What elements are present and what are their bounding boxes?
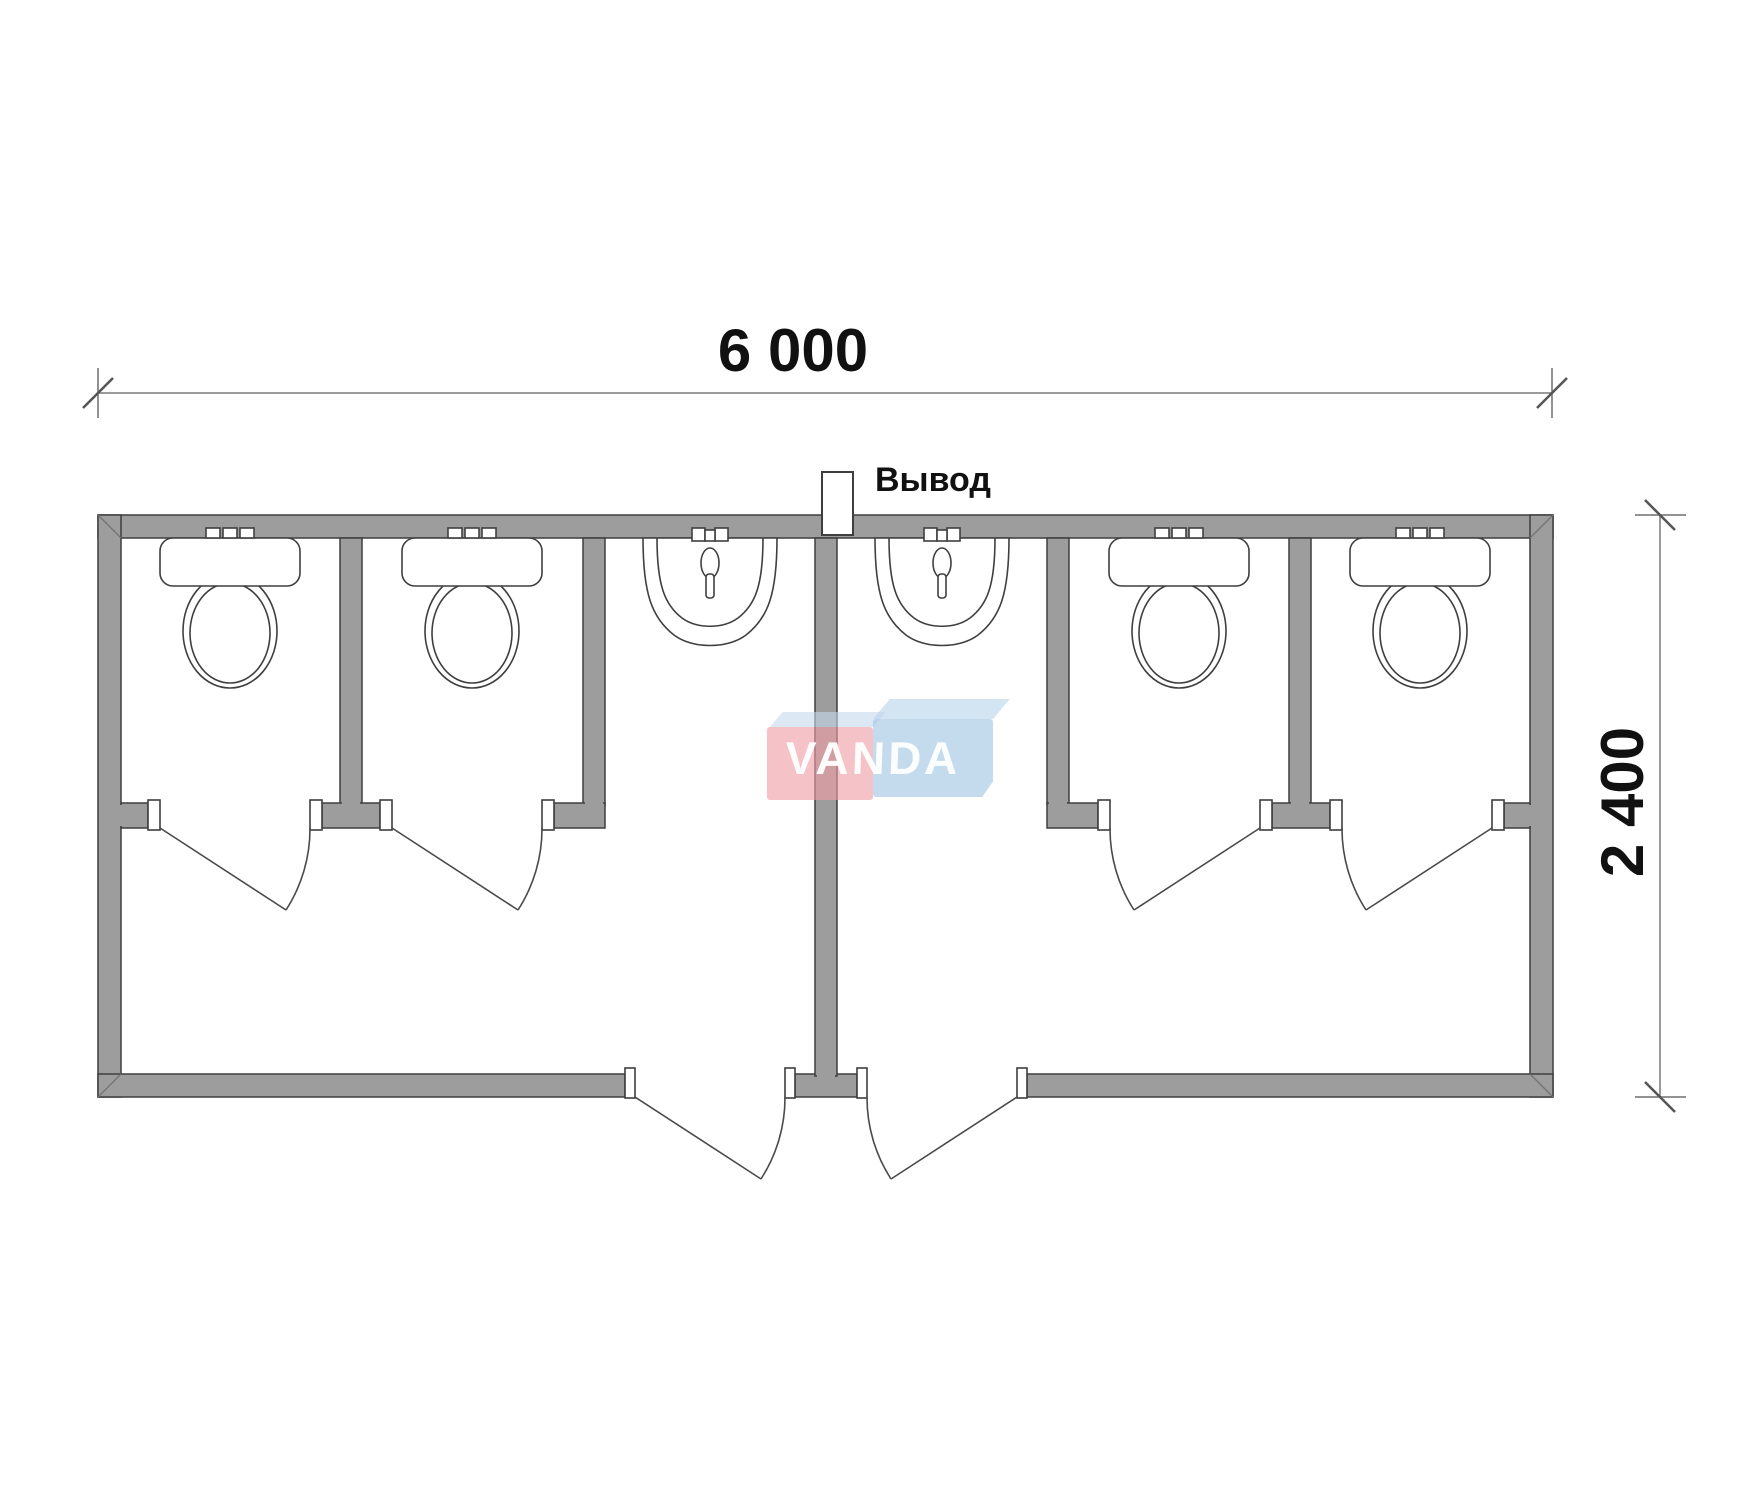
stall2-door-jamb-right [542, 800, 554, 830]
floor-plan-canvas: VANDA 6 000 2 400 Вывод [0, 0, 1763, 1503]
toilet-icon [1350, 528, 1490, 688]
stall1-door-jamb-left [148, 800, 160, 830]
watermark-text: VANDA [778, 731, 968, 785]
stall4-door-jamb-left [1330, 800, 1342, 830]
partition-lobby-stall3 [1047, 538, 1069, 805]
toilet-icon [402, 528, 542, 688]
dimension-width-label: 6 000 [643, 316, 943, 386]
stall4-door-jamb-right [1492, 800, 1504, 830]
stall1-front-wall [121, 803, 148, 828]
toilet-icon [1109, 528, 1249, 688]
stall3-door-swing [1110, 828, 1260, 910]
dimension-height-label: 2 400 [1591, 652, 1655, 952]
stall3-door-jamb-right [1260, 800, 1272, 830]
stall3-door-jamb-left [1098, 800, 1110, 830]
sink-icon [643, 528, 777, 646]
wall-left [98, 515, 121, 1097]
partition-stall1-stall2 [340, 538, 362, 805]
partition-stall3-stall4 [1289, 538, 1311, 805]
stall4-door-swing [1342, 828, 1492, 910]
entrance-left-door-swing [635, 1097, 785, 1179]
entrance-right-jamb-right [1017, 1068, 1027, 1098]
wall-central [815, 538, 837, 1076]
stall1-door-swing [160, 828, 310, 910]
outlet-label: Вывод [875, 461, 991, 500]
entrance-right-jamb-left [857, 1068, 867, 1098]
stall2-door-jamb-left [380, 800, 392, 830]
stall2-door-swing [392, 828, 542, 910]
wall-bottom-left [98, 1074, 625, 1097]
toilet-icon [160, 528, 300, 688]
entrance-left-jamb-left [625, 1068, 635, 1098]
entrance-left-jamb-right [785, 1068, 795, 1098]
utility-outlet-box [822, 472, 853, 535]
stall1-door-jamb-right [310, 800, 322, 830]
sink-icon [875, 528, 1009, 646]
stall4-front-wall [1504, 803, 1530, 828]
watermark-top-face-left [770, 712, 886, 727]
partition-stall2-lobby [583, 538, 605, 805]
watermark-top-face-right [873, 699, 1010, 719]
entrance-right-door-swing [867, 1097, 1017, 1179]
wall-bottom-right [1027, 1074, 1553, 1097]
